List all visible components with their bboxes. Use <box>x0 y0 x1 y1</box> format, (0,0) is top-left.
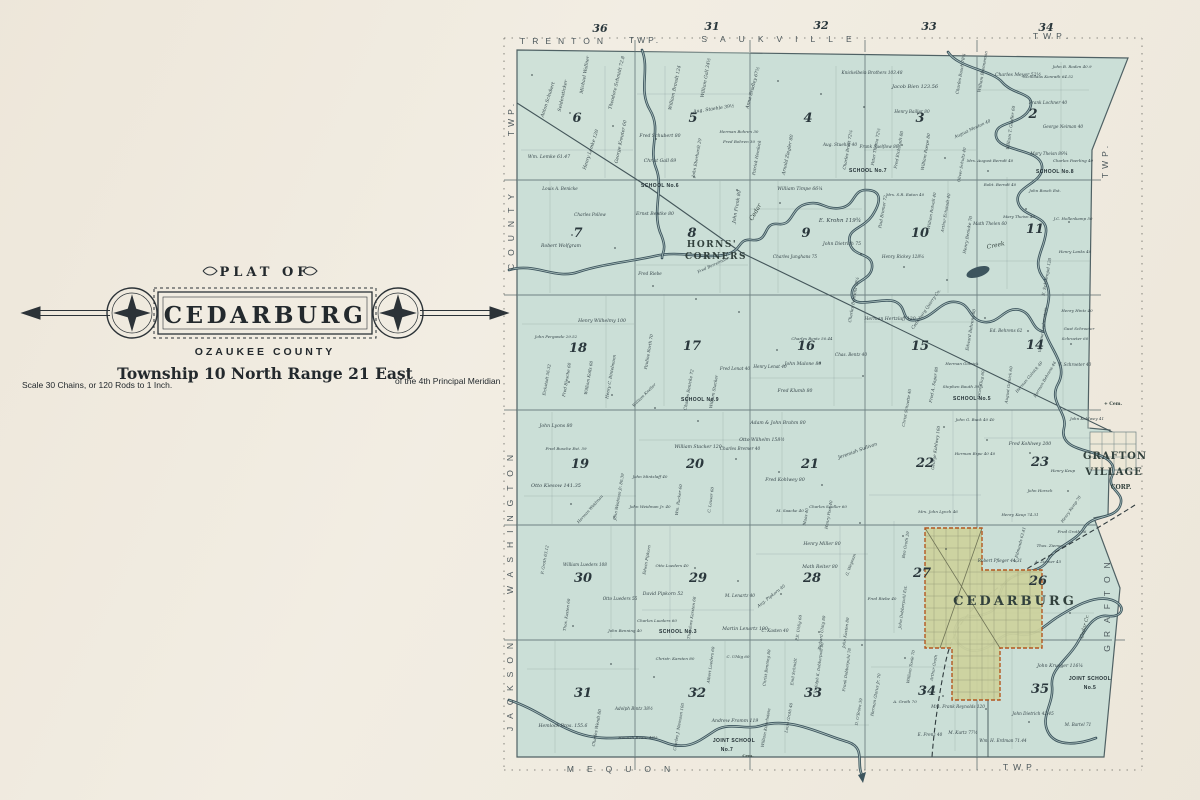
section-number: 5 <box>688 111 697 126</box>
parcel-owner-label: Ernst Bentke 80 <box>635 211 674 217</box>
section-number: 18 <box>569 341 587 356</box>
parcel-owner-label: Fred Klumb 80 <box>777 388 813 394</box>
parcel-owner-label: John Weidman Jr. 40 <box>628 504 671 509</box>
parcel-owner-label: E. Frenz 40 <box>917 732 943 737</box>
house-dot <box>780 593 782 595</box>
parcel-owner-label: Henry Wilhelmy 100 <box>577 318 626 324</box>
place-label: CORNERS <box>685 252 747 262</box>
school-label: SCHOOL No.7 <box>849 168 887 174</box>
parcel-owner-label: John Dietrich 75 <box>822 241 861 247</box>
parcel-owner-label: Frank Suelflow 80 <box>859 144 899 149</box>
township-edge-label: COUNTY <box>506 186 516 270</box>
parcel-owner-label: Mary Theisn 40 <box>1002 214 1035 219</box>
school-label: SCHOOL No.8 <box>1036 169 1074 175</box>
parcel-owner-label: A. Groth 70 <box>892 699 917 704</box>
parcel-owner-label: John Bosch Est. <box>1028 188 1061 193</box>
township-edge-label: TWP. <box>1033 31 1073 41</box>
parcel-owner-label: Otto Wilhelm 158½ <box>739 436 784 443</box>
adjacent-section-number: 32 <box>813 19 829 32</box>
parcel-owner-label: William Stacker 120 <box>674 444 721 450</box>
section-number: 19 <box>571 457 589 472</box>
parcel-owner-label: Mrs. Frank Reynolds 120 <box>930 704 985 709</box>
parcel-owner-label: Fred Bohren 30 <box>722 139 755 144</box>
parcel-owner-label: John Krueger 116¼ <box>1036 662 1083 669</box>
section-number: 9 <box>801 226 810 241</box>
house-dot <box>987 170 989 172</box>
section-number: 30 <box>574 571 592 586</box>
section-number: 29 <box>688 571 707 586</box>
parcel-owner-label: Wm. Lemke 61.47 <box>528 154 570 160</box>
house-dot <box>820 93 822 95</box>
parcel-owner-label: Andrew Fromm 119 <box>711 718 759 724</box>
section-number: 3 <box>915 111 924 126</box>
place-label: CEDARBURG <box>953 594 1077 609</box>
house-dot <box>1068 221 1070 223</box>
house-dot <box>1029 452 1031 454</box>
parcel-owner-label: Herman Espe 40 40 <box>954 451 996 456</box>
house-dot <box>904 657 906 659</box>
plat-map: Anton SchubertSeidenstickerMichael Walln… <box>0 0 1200 800</box>
section-number: 21 <box>800 457 819 472</box>
parcel-owner-label: John Lyons 80 <box>539 423 573 429</box>
adjacent-section-number: 36 <box>592 22 608 35</box>
parcel-owner-label: C. Uhlig 60 <box>727 654 750 659</box>
house-dot <box>653 676 655 678</box>
parcel-owner-label: William Timpe 66¼ <box>777 185 822 192</box>
house-dot <box>942 695 944 697</box>
township-edge-label: TWP. <box>506 100 516 136</box>
house-dot <box>946 279 948 281</box>
house-dot <box>569 112 571 114</box>
parcel-owner-label: Schroeter 60 <box>1062 336 1089 341</box>
house-dot <box>695 298 697 300</box>
school-label: SCHOOL No.9 <box>681 397 719 403</box>
parcel-owner-label: Charles Seidler 60 <box>809 504 847 509</box>
house-dot <box>944 157 946 159</box>
parcel-owner-label: Robt. Berndt 40 <box>983 182 1017 187</box>
section-number: 15 <box>911 339 929 354</box>
parcel-owner-label: Thos. Ziemer <box>1037 543 1065 548</box>
house-dot <box>610 663 612 665</box>
parcel-owner-label: Gust Schroeter <box>1064 326 1096 331</box>
house-dot <box>737 580 739 582</box>
parcel-owner-label: Fred Busche Est. 59 <box>544 446 587 451</box>
school-label: SCHOOL No.6 <box>641 183 679 189</box>
parcel-owner-label: Mrs. August Berndt 40 <box>966 158 1014 163</box>
parcel-owner-label: Fred Schubert 80 <box>638 133 680 139</box>
parcel-owner-label: Aug. Stuehle 40 <box>822 142 857 147</box>
parcel-owner-label: Henry Keup <box>1050 468 1076 473</box>
section-number: 6 <box>572 111 581 126</box>
house-dot <box>1025 208 1027 210</box>
stream-arrow-icon <box>858 772 866 783</box>
parcel-owner-label: Hemlock Bros. 155.6 <box>538 723 588 729</box>
parcel-owner-label: Christr. Karsten 80 <box>656 656 695 661</box>
section-number: 16 <box>797 339 815 354</box>
parcel-owner-label: Otto Lueders 55 <box>603 596 638 601</box>
school-label: No.5 <box>1084 685 1096 691</box>
house-dot <box>778 471 780 473</box>
adjacent-section-number: 31 <box>704 20 719 33</box>
school-label: JOINT SCHOOL <box>1069 676 1111 682</box>
parcel-owner-label: William Lueders 108 <box>563 562 607 567</box>
house-dot <box>985 708 987 710</box>
section-number: 20 <box>685 457 704 472</box>
parcel-owner-label: J.C. Hollenkamp 50 <box>1053 216 1093 221</box>
parcel-owner-label: Charles Lueders 60 <box>637 618 677 623</box>
parcel-owner-label: George Neiman 40 <box>1043 124 1083 129</box>
parcel-owner-label: E. Krohn 119¾ <box>818 217 861 224</box>
house-dot <box>945 548 947 550</box>
parcel-owner-label: Adam & John Brahm 80 <box>749 420 805 426</box>
parcel-owner-label: Henry Hintz 40 <box>1060 308 1093 313</box>
parcel-owner-label: Henry Kaup 74.31 <box>1000 512 1038 517</box>
parcel-owner-label: Otto Kiesow 141.35 <box>531 483 581 489</box>
house-dot <box>694 567 696 569</box>
adjacent-section-number: 33 <box>921 20 937 33</box>
parcel-owner-label: Henry Miller 80 <box>802 541 840 547</box>
section-number: 22 <box>915 456 934 471</box>
parcel-owner-label: Mrs. John Lynch 46 <box>917 509 958 514</box>
parcel-owner-label: Fred Kohlwey 200 <box>1008 441 1052 447</box>
parcel-owner-label: Charles Paerling 40 <box>1053 158 1094 163</box>
parcel-owner-label: John Dietrich 42.45 <box>1011 711 1054 716</box>
house-dot <box>1028 721 1030 723</box>
township-edge-label: MEQUON <box>567 764 683 774</box>
section-number: 35 <box>1031 682 1049 697</box>
school-label: JOINT SCHOOL <box>713 738 755 744</box>
parcel-owner-label: F. Schroeter 40 <box>1058 362 1092 367</box>
house-dot <box>779 202 781 204</box>
parcel-owner-label: Ed. Behrens 62 <box>989 328 1023 333</box>
parcel-owner-label: Knickelbein Brothers 103.48 <box>841 70 903 75</box>
parcel-owner-label: John Horsch <box>1026 488 1053 493</box>
house-dot <box>570 503 572 505</box>
section-number: 23 <box>1030 455 1049 470</box>
parcel-owner-label: Henry Rickey 128¼ <box>881 254 924 259</box>
section-number: 26 <box>1028 574 1047 589</box>
parcel-owner-label: Mary Theisn 89¼ <box>1029 151 1067 156</box>
parcel-owner-label: Hannah Beare 48½ <box>617 735 658 740</box>
house-dot <box>1027 330 1029 332</box>
parcel-owner-label: Nicholaus Konrath 64.52 <box>1022 74 1074 79</box>
parcel-owner-label: John Pergande 29.52 <box>534 334 578 339</box>
house-dot <box>1067 490 1069 492</box>
township-edge-label: JACKSON <box>505 635 515 731</box>
section-number: 14 <box>1026 338 1044 353</box>
section-number: 33 <box>804 686 822 701</box>
parcel-owner-label: Fred Riebe 40 <box>867 596 897 601</box>
parcel-owner-label: John Mintzlaff 40 <box>632 474 668 479</box>
parcel-owner-label: Mrs. S.R. Eaton 40 <box>885 192 925 197</box>
parcel-owner-label: M. Bartel 71 <box>1064 722 1092 727</box>
school-label: SCHOOL No.3 <box>659 629 697 635</box>
parcel-owner-label: M. Lenartz 40 <box>724 593 755 598</box>
place-label: Cem. <box>742 753 754 758</box>
parcel-owner-label: Charles Bremer 40 <box>720 446 761 451</box>
parcel-owner-label: John G. Buck 40 40 <box>955 417 995 422</box>
house-dot <box>860 253 862 255</box>
house-dot <box>777 80 779 82</box>
parcel-owner-label: Charles Junghans 75 <box>773 254 817 259</box>
house-dot <box>611 394 613 396</box>
section-number: 4 <box>803 111 812 126</box>
section-number: 8 <box>687 226 696 241</box>
school-label: No.7 <box>721 747 733 753</box>
parcel-owner-label: Wm. H. Erdman 71.44 <box>979 738 1027 743</box>
parcel-owner-label: Robert Wolfgram <box>540 243 582 249</box>
section-number: 28 <box>802 571 821 586</box>
place-label: HORNS' <box>687 240 737 250</box>
parcel-owner-label: John Benning 40 <box>607 628 642 633</box>
plat-map-page: PLAT OF <box>0 0 1200 800</box>
house-dot <box>943 426 945 428</box>
township-edge-label: WASHINGTON <box>505 446 515 594</box>
parcel-owner-label: David Pipkorn 52 <box>642 591 683 597</box>
township-edge-label: TRENTON <box>520 36 610 46</box>
house-dot <box>614 247 616 249</box>
house-dot <box>776 349 778 351</box>
house-dot <box>1070 343 1072 345</box>
parcel-owner-label: Henry Lenat 40 <box>752 364 787 369</box>
parcel-owner-label: Jacob Bien 123.56 <box>891 84 939 90</box>
section-number: 10 <box>911 226 929 241</box>
house-dot <box>821 484 823 486</box>
parcel-owner-label: Math Reiter 80 <box>801 564 837 570</box>
house-dot <box>862 375 864 377</box>
school-label: SCHOOL No.5 <box>953 396 991 402</box>
parcel-owner-label: Fred Groth 36 <box>1057 529 1087 534</box>
house-dot <box>859 522 861 524</box>
parcel-owner-label: Frank Lochner 40 <box>1028 100 1067 105</box>
house-dot <box>697 420 699 422</box>
parcel-owner-label: A. Ziemer 45 <box>1034 559 1062 564</box>
parcel-owner-label: Charles Pollow <box>574 212 606 217</box>
section-number: 27 <box>912 566 931 581</box>
place-label: + Cem. <box>1104 401 1123 407</box>
parcel-owner-label: M. Kurtz 77½ <box>947 730 977 735</box>
parcel-owner-label: Fred Lenat 40 <box>719 366 751 371</box>
house-dot <box>572 625 574 627</box>
parcel-owner-label: Louis A. Benicke <box>541 186 578 191</box>
parcel-owner-label: John Kohlwey 41 <box>1069 416 1104 421</box>
township-edge-label: TWP. <box>629 35 661 45</box>
place-label: CORP. <box>1111 484 1132 491</box>
parcel-owner-label: Fred Kohlwey 80 <box>764 477 805 483</box>
parcel-owner-label: John Malone 80 <box>784 361 822 367</box>
house-dot <box>903 266 905 268</box>
parcel-owner-label: Herman Bohren 30 <box>719 129 759 134</box>
house-dot <box>738 311 740 313</box>
section-number: 17 <box>683 339 701 354</box>
parcel-owner-label: Herman Hertzlaff 120 <box>863 316 915 322</box>
township-edge-label: TWP. <box>1003 762 1043 772</box>
house-dot <box>531 74 533 76</box>
house-dot <box>984 317 986 319</box>
house-dot <box>861 644 863 646</box>
place-label: GRAFTON <box>1083 451 1147 462</box>
house-dot <box>735 458 737 460</box>
parcel-owner-label: Fred Riebe <box>637 271 662 276</box>
township-edge-label: SAUKVILLE <box>701 34 864 44</box>
parcel-owner-label: C. Kasten 40 <box>761 628 788 633</box>
section-number: 31 <box>574 686 592 701</box>
house-dot <box>612 125 614 127</box>
section-number: 32 <box>688 686 706 701</box>
parcel-owner-label: Chas. Bentz 40 <box>835 352 867 357</box>
parcel-owner-label: Christ Gall 69 <box>644 158 677 164</box>
house-dot <box>1069 612 1071 614</box>
house-dot <box>652 285 654 287</box>
parcel-owner-label: Otto Lueders 40 <box>655 563 688 568</box>
parcel-owner-label: Math Thelen 60 <box>972 221 1007 226</box>
parcel-owner-label: Henry Lanks 40 <box>1058 249 1092 254</box>
section-number: 7 <box>573 226 582 241</box>
township-edge-label: TWP. <box>1100 142 1110 178</box>
house-dot <box>986 439 988 441</box>
parcel-owner-label: Adolph Bintz 38½ <box>614 706 653 711</box>
parcel-owner-label: M. Saacke 40 <box>775 508 804 513</box>
section-number: 11 <box>1026 222 1044 237</box>
township-edge-label: GRAFTON <box>1102 554 1112 651</box>
place-label: VILLAGE <box>1084 467 1142 478</box>
section-number: 34 <box>918 684 936 699</box>
section-number: 2 <box>1027 107 1037 122</box>
parcel-owner-label: John B. Roden 40.9 <box>1051 64 1091 69</box>
house-dot <box>654 407 656 409</box>
house-dot <box>863 106 865 108</box>
parcel-owner-label: Herman Golnick <box>944 361 979 366</box>
